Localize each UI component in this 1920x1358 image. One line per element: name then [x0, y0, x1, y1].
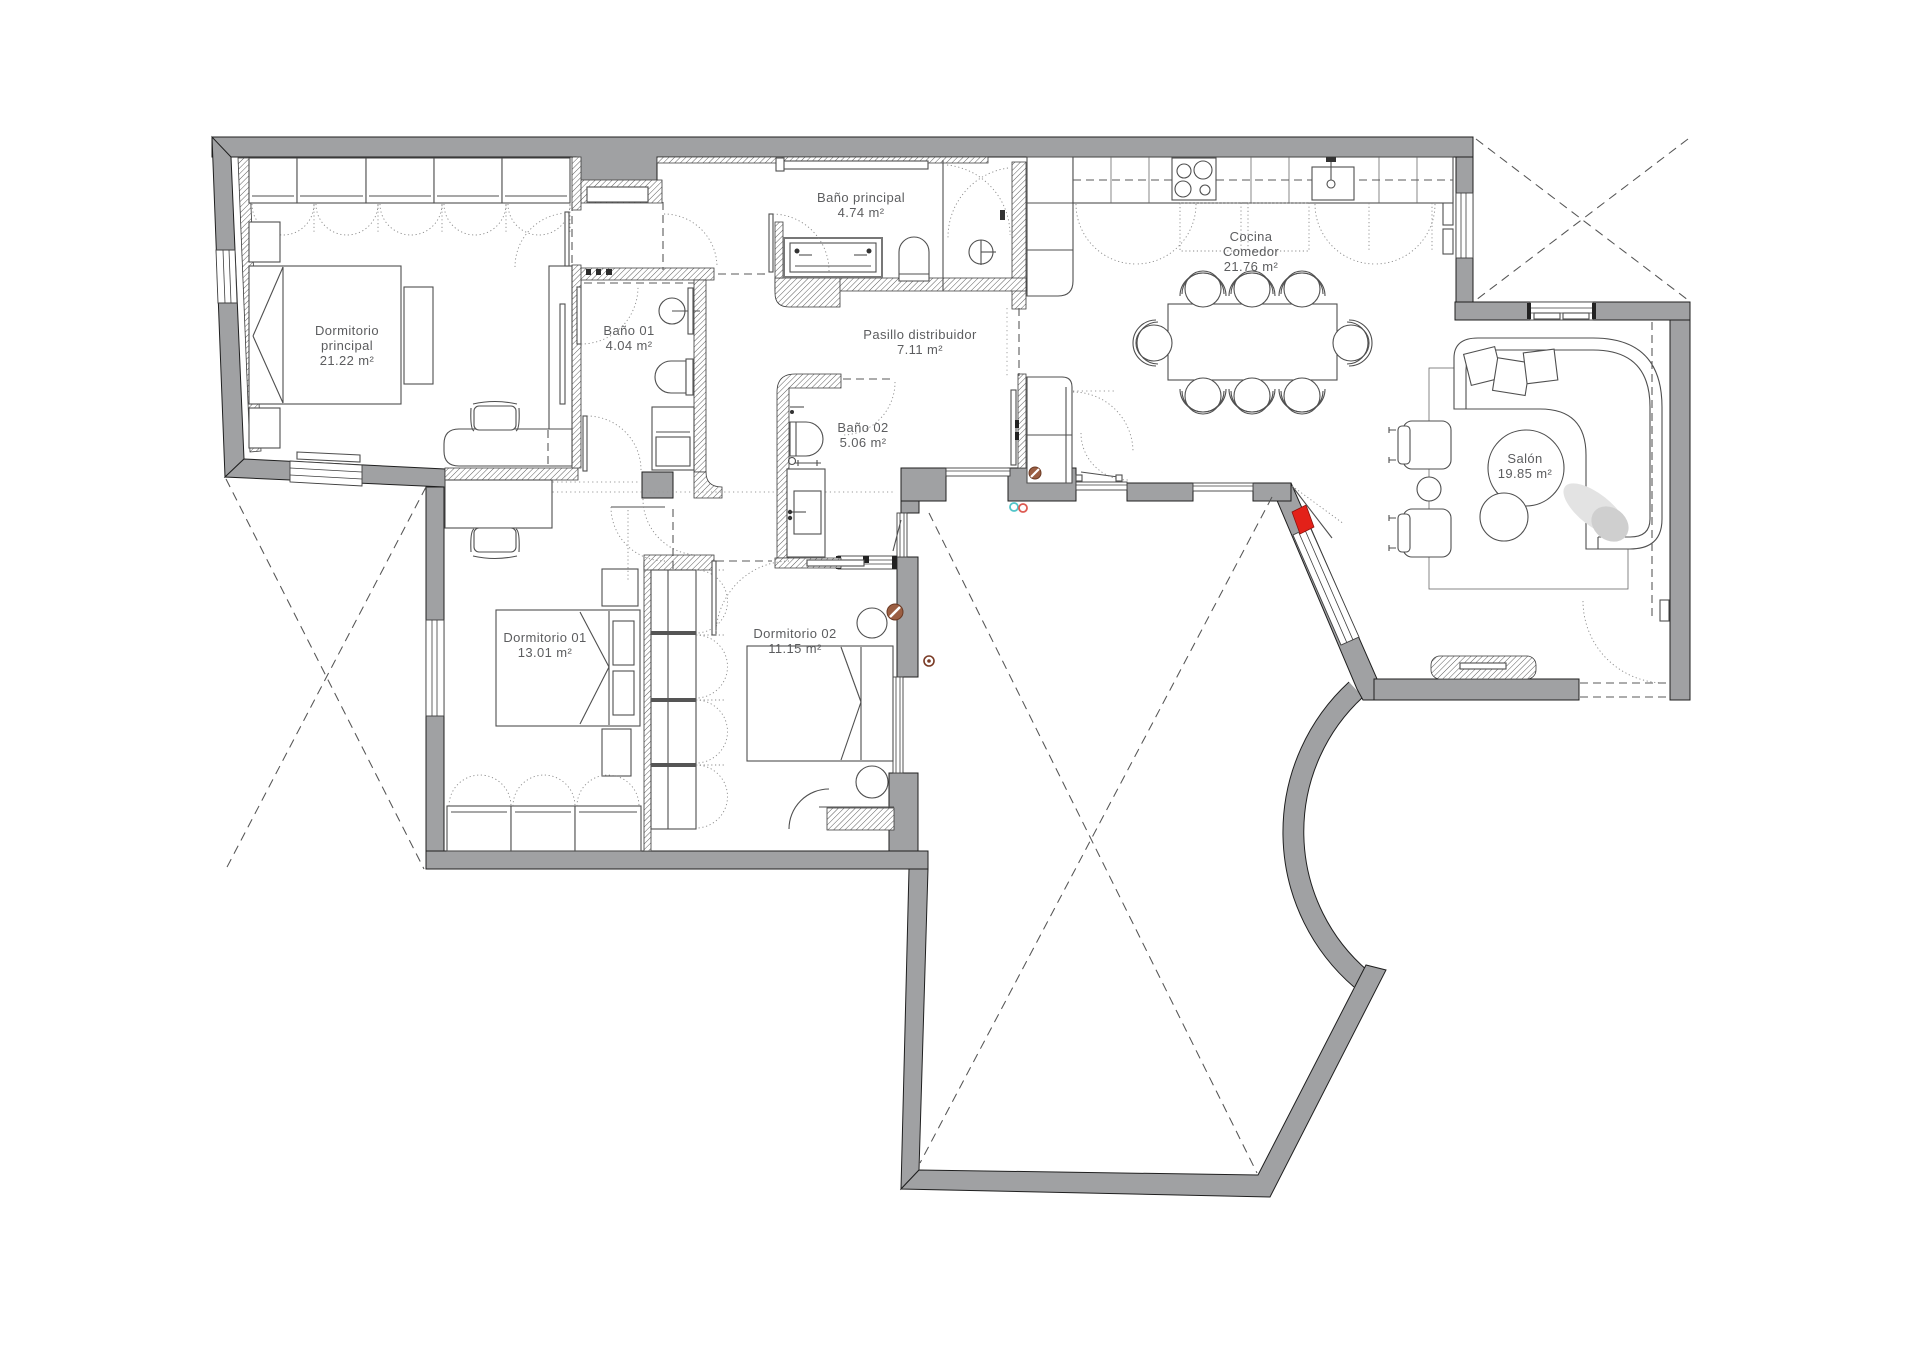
svg-text:7.11 m²: 7.11 m² [897, 342, 943, 357]
svg-text:Comedor: Comedor [1223, 244, 1280, 259]
svg-text:Dormitorio 01: Dormitorio 01 [503, 630, 586, 645]
svg-text:Dormitorio: Dormitorio [315, 323, 379, 338]
svg-text:Baño principal: Baño principal [817, 190, 905, 205]
svg-text:4.04 m²: 4.04 m² [606, 338, 653, 353]
svg-text:Salón: Salón [1507, 451, 1542, 466]
svg-text:13.01 m²: 13.01 m² [518, 645, 573, 660]
svg-text:Pasillo distribuidor: Pasillo distribuidor [863, 327, 977, 342]
svg-text:5.06 m²: 5.06 m² [840, 435, 887, 450]
svg-text:11.15 m²: 11.15 m² [768, 641, 822, 656]
svg-text:4.74 m²: 4.74 m² [838, 205, 885, 220]
svg-text:21.22 m²: 21.22 m² [320, 353, 375, 368]
svg-text:Cocina: Cocina [1230, 229, 1273, 244]
svg-text:principal: principal [321, 338, 373, 353]
svg-text:Baño 02: Baño 02 [837, 420, 888, 435]
svg-text:19.85 m²: 19.85 m² [1498, 466, 1553, 481]
svg-text:Dormitorio 02: Dormitorio 02 [753, 626, 836, 641]
svg-text:Baño 01: Baño 01 [603, 323, 654, 338]
